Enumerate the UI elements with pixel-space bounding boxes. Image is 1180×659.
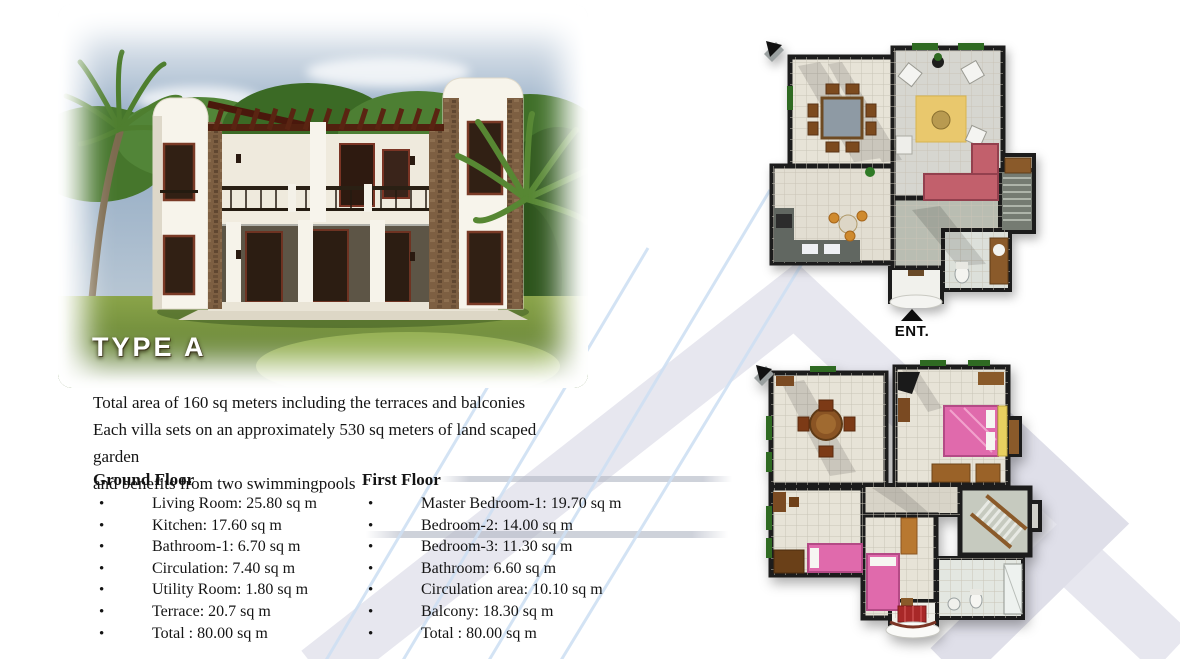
list-item: •Bathroom: 6.60 sq m <box>362 560 652 582</box>
list-item-text: Living Room: 25.80 sq m <box>152 495 317 513</box>
bullet-icon: • <box>368 582 380 599</box>
bullet-icon: • <box>368 496 380 513</box>
list-item: •Bedroom-3: 11.30 sq m <box>362 538 652 560</box>
entrance-label: ENT. <box>877 323 947 340</box>
stairs <box>1002 172 1032 230</box>
villa-photo: TYPE A <box>58 4 588 388</box>
list-item: •Total : 80.00 sq m <box>93 625 383 647</box>
list-item-text: Total : 80.00 sq m <box>152 625 268 643</box>
list-item-text: Total : 80.00 sq m <box>421 625 537 643</box>
ground-floor-plan <box>762 40 1058 308</box>
ground-floor-list: Ground Floor •Living Room: 25.80 sq m•Ki… <box>93 470 383 646</box>
plan-corner-marker <box>764 41 784 62</box>
list-item: •Circulation area: 10.10 sq m <box>362 581 652 603</box>
list-item-text: Circulation area: 10.10 sq m <box>421 581 603 599</box>
first-floor-title: First Floor <box>362 470 652 490</box>
intro-line: Total area of 160 sq meters including th… <box>93 389 573 416</box>
list-item-text: Kitchen: 17.60 sq m <box>152 517 282 535</box>
first-floor-items: •Master Bedroom-1: 19.70 sq m•Bedroom-2:… <box>362 495 652 646</box>
list-item-text: Balcony: 18.30 sq m <box>421 603 553 621</box>
list-item: •Terrace: 20.7 sq m <box>93 603 383 625</box>
bullet-icon: • <box>99 561 111 578</box>
entrance-marker: ENT. <box>877 309 947 340</box>
list-item: •Master Bedroom-1: 19.70 sq m <box>362 495 652 517</box>
list-item: •Bedroom-2: 14.00 sq m <box>362 517 652 539</box>
brochure-page: TYPE A Total area of 160 sq meters inclu… <box>0 0 1180 659</box>
list-item-text: Master Bedroom-1: 19.70 sq m <box>421 495 621 513</box>
list-item-text: Circulation: 7.40 sq m <box>152 560 295 578</box>
list-item: •Total : 80.00 sq m <box>362 625 652 647</box>
list-item-text: Bedroom-2: 14.00 sq m <box>421 517 573 535</box>
bullet-icon: • <box>368 539 380 556</box>
list-item-text: Bathroom-1: 6.70 sq m <box>152 538 300 556</box>
bullet-icon: • <box>99 539 111 556</box>
villa-photo-art <box>58 4 588 388</box>
bullet-icon: • <box>99 626 111 643</box>
list-item-text: Bathroom: 6.60 sq m <box>421 560 556 578</box>
intro-line: Each villa sets on an approximately 530 … <box>93 416 573 470</box>
ground-floor-title: Ground Floor <box>93 470 383 490</box>
bullet-icon: • <box>368 626 380 643</box>
list-item: •Living Room: 25.80 sq m <box>93 495 383 517</box>
list-item: •Kitchen: 17.60 sq m <box>93 517 383 539</box>
first-floor-plan <box>752 360 1104 642</box>
villa-type-label: TYPE A <box>92 332 207 363</box>
list-item: •Balcony: 18.30 sq m <box>362 603 652 625</box>
list-item: •Circulation: 7.40 sq m <box>93 560 383 582</box>
first-floor-list: First Floor •Master Bedroom-1: 19.70 sq … <box>362 470 652 646</box>
ground-floor-items: •Living Room: 25.80 sq m•Kitchen: 17.60 … <box>93 495 383 646</box>
bullet-icon: • <box>99 518 111 535</box>
bullet-icon: • <box>99 582 111 599</box>
ent-arrow-icon <box>901 309 923 321</box>
list-item: •Bathroom-1: 6.70 sq m <box>93 538 383 560</box>
list-item: •Utility Room: 1.80 sq m <box>93 581 383 603</box>
bullet-icon: • <box>368 604 380 621</box>
list-item-text: Utility Room: 1.80 sq m <box>152 581 308 599</box>
bullet-icon: • <box>99 604 111 621</box>
bullet-icon: • <box>99 496 111 513</box>
bullet-icon: • <box>368 561 380 578</box>
list-item-text: Terrace: 20.7 sq m <box>152 603 271 621</box>
bullet-icon: • <box>368 518 380 535</box>
list-item-text: Bedroom-3: 11.30 sq m <box>421 538 572 556</box>
